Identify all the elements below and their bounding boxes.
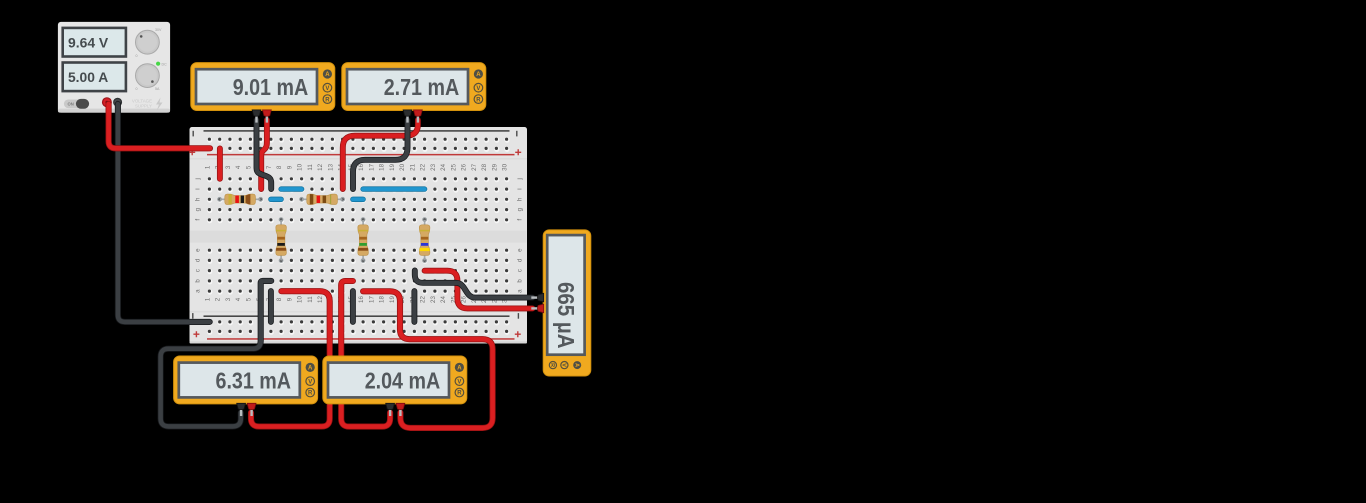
svg-text:22: 22 (420, 163, 427, 170)
svg-text:j: j (516, 178, 523, 180)
svg-text:0: 0 (136, 54, 138, 58)
svg-text:9: 9 (286, 165, 293, 169)
svg-text:11: 11 (307, 164, 314, 171)
svg-text:d: d (516, 258, 523, 262)
svg-text:665 µA: 665 µA (553, 282, 579, 349)
svg-text:5A: 5A (155, 87, 160, 91)
svg-text:A: A (476, 72, 481, 78)
svg-text:g: g (194, 207, 201, 211)
svg-text:2.04 mA: 2.04 mA (365, 368, 441, 394)
svg-text:24: 24 (440, 163, 447, 170)
svg-text:6.31 mA: 6.31 mA (216, 368, 292, 394)
svg-text:V: V (476, 86, 480, 92)
svg-text:a: a (194, 289, 201, 293)
svg-text:f: f (194, 219, 201, 221)
svg-text:27: 27 (471, 163, 478, 170)
svg-text:A: A (457, 366, 462, 372)
svg-text:2: 2 (215, 297, 222, 301)
svg-text:16: 16 (358, 163, 365, 170)
svg-text:12: 12 (317, 296, 324, 303)
svg-text:13: 13 (327, 163, 334, 170)
svg-text:10: 10 (297, 296, 304, 303)
svg-text:i: i (516, 188, 523, 189)
svg-text:9.64 V: 9.64 V (68, 35, 108, 50)
svg-text:17: 17 (368, 163, 375, 170)
svg-text:A: A (308, 366, 313, 372)
svg-text:i: i (194, 188, 201, 189)
svg-text:3: 3 (225, 165, 232, 169)
svg-text:c: c (516, 269, 523, 272)
svg-text:j: j (194, 178, 201, 180)
svg-text:22: 22 (420, 296, 427, 303)
svg-text:4: 4 (235, 165, 242, 169)
svg-text:R: R (457, 391, 462, 397)
svg-text:b: b (516, 279, 523, 283)
svg-text:R: R (549, 363, 555, 367)
svg-text:24: 24 (440, 296, 447, 303)
svg-text:a: a (516, 289, 523, 293)
svg-text:7: 7 (266, 165, 273, 169)
svg-text:23: 23 (430, 296, 437, 303)
svg-text:V: V (308, 379, 312, 385)
svg-text:29: 29 (491, 163, 498, 170)
svg-text:19: 19 (389, 163, 396, 170)
svg-text:c: c (194, 269, 201, 272)
svg-text:12: 12 (317, 163, 324, 170)
svg-text:V: V (325, 86, 329, 92)
svg-text:R: R (476, 97, 481, 103)
svg-text:9.01 mA: 9.01 mA (233, 74, 309, 100)
svg-text:e: e (194, 248, 201, 252)
svg-text:30V: 30V (155, 28, 162, 32)
svg-text:10: 10 (297, 163, 304, 170)
svg-text:20: 20 (399, 163, 406, 170)
svg-text:h: h (516, 197, 523, 201)
svg-text:26: 26 (461, 163, 468, 170)
svg-text:1: 1 (204, 297, 211, 301)
svg-text:5.00 A: 5.00 A (68, 70, 109, 85)
svg-text:DC: DC (162, 63, 168, 67)
svg-text:8: 8 (276, 297, 283, 301)
svg-text:f: f (516, 219, 523, 221)
svg-text:h: h (194, 197, 201, 201)
svg-text:21: 21 (409, 163, 416, 170)
svg-text:R: R (325, 97, 330, 103)
svg-text:V: V (561, 363, 567, 367)
svg-text:SUPPLY: SUPPLY (135, 104, 152, 109)
svg-text:17: 17 (368, 296, 375, 303)
svg-text:28: 28 (481, 163, 488, 170)
svg-text:19: 19 (389, 296, 396, 303)
svg-text:e: e (516, 248, 523, 252)
svg-text:16: 16 (358, 296, 365, 303)
svg-text:1: 1 (204, 165, 211, 169)
svg-text:2.71 mA: 2.71 mA (384, 74, 460, 100)
svg-text:A: A (573, 363, 579, 367)
svg-text:A: A (325, 72, 330, 78)
svg-text:V: V (457, 379, 461, 385)
svg-text:b: b (194, 279, 201, 283)
svg-text:30: 30 (502, 163, 509, 170)
svg-text:9: 9 (286, 297, 293, 301)
svg-text:5: 5 (245, 165, 252, 169)
svg-text:18: 18 (379, 163, 386, 170)
svg-text:3: 3 (225, 297, 232, 301)
svg-text:4: 4 (235, 297, 242, 301)
svg-text:0: 0 (136, 87, 138, 91)
svg-text:23: 23 (430, 163, 437, 170)
svg-text:R: R (308, 391, 313, 397)
svg-text:g: g (516, 207, 523, 211)
svg-text:d: d (194, 258, 201, 262)
svg-text:11: 11 (307, 296, 314, 303)
svg-text:8: 8 (276, 165, 283, 169)
svg-text:5: 5 (245, 297, 252, 301)
svg-text:18: 18 (379, 296, 386, 303)
svg-text:25: 25 (450, 163, 457, 170)
svg-text:ON: ON (68, 102, 74, 107)
